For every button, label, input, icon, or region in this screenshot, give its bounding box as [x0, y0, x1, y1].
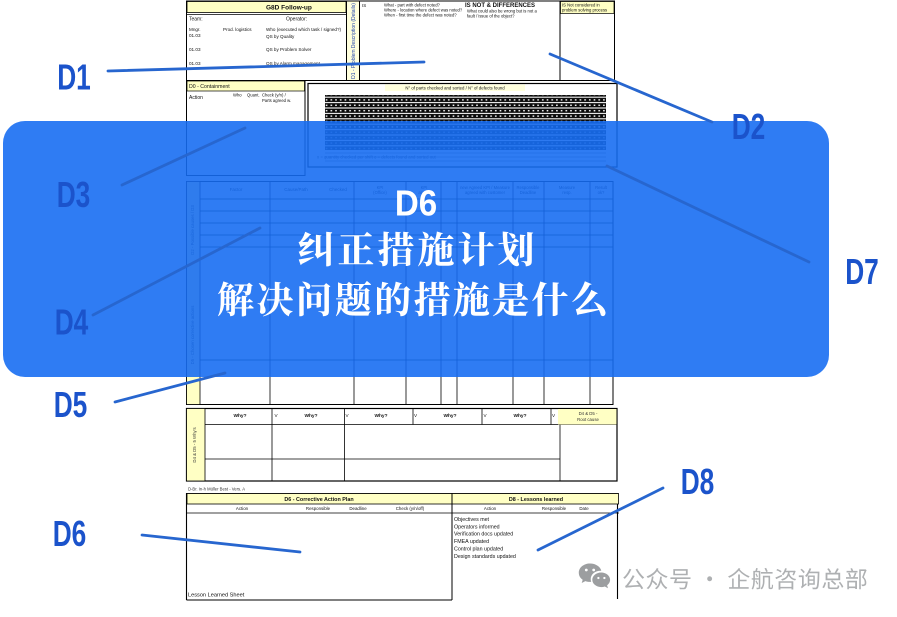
svg-text:D7: D7	[845, 251, 879, 292]
svg-text:Why?: Why?	[374, 413, 387, 419]
svg-text:QS by Problem Solver: QS by Problem Solver	[266, 47, 312, 52]
svg-text:D2: D2	[732, 106, 766, 147]
svg-text:Deadline: Deadline	[349, 506, 367, 511]
svg-text:Design standards updated: Design standards updated	[454, 554, 516, 560]
svg-text:D1 - Problem Description (Deta: D1 - Problem Description (Details)	[351, 3, 357, 79]
svg-text:Team:: Team:	[189, 17, 203, 23]
svg-text:D-Br. In-h Müller Best - Vers.: D-Br. In-h Müller Best - Vers. A	[188, 487, 245, 492]
svg-text:Prod. logistics: Prod. logistics	[223, 27, 252, 32]
svg-text:D6: D6	[395, 184, 437, 224]
svg-text:01.03: 01.03	[189, 33, 201, 38]
svg-text:Mngr.: Mngr.	[189, 27, 201, 32]
svg-text:Action: Action	[189, 95, 203, 101]
svg-text:Responsible: Responsible	[306, 506, 331, 511]
svg-text:QS by Quality: QS by Quality	[266, 34, 295, 39]
svg-text:Action: Action	[484, 506, 497, 511]
svg-text:fault / issue of the object?: fault / issue of the object?	[467, 14, 515, 19]
svg-text:Verification docs updated: Verification docs updated	[454, 532, 513, 538]
svg-text:Who (executed which task / sig: Who (executed which task / signed?)	[266, 27, 342, 32]
svg-text:D8: D8	[681, 461, 715, 502]
svg-text:G8D Follow-up: G8D Follow-up	[266, 5, 312, 12]
svg-text:01.03: 01.03	[189, 61, 201, 66]
svg-text:Check (y/n) /: Check (y/n) /	[262, 93, 287, 98]
svg-text:Check (y/n/off): Check (y/n/off)	[396, 506, 425, 511]
svg-text:IS: IS	[362, 3, 366, 8]
svg-text:Objectives met: Objectives met	[454, 517, 490, 523]
svg-text:Responsible: Responsible	[542, 506, 567, 511]
svg-text:D8 - Lessons learned: D8 - Lessons learned	[509, 497, 563, 503]
svg-text:D6: D6	[53, 513, 87, 554]
svg-text:01.03: 01.03	[189, 47, 201, 52]
svg-text:Why?: Why?	[233, 413, 246, 419]
svg-text:Control plan updated: Control plan updated	[454, 546, 503, 552]
svg-text:When - first time the defect w: When - first time the defect was noted?	[384, 13, 457, 18]
svg-text:D5: D5	[54, 384, 88, 425]
svg-text:Quant.: Quant.	[247, 93, 260, 98]
svg-text:N° of parts checked and sorted: N° of parts checked and sorted / N° of d…	[405, 86, 505, 91]
svg-text:Why?: Why?	[304, 413, 317, 419]
svg-text:Action: Action	[236, 506, 249, 511]
svg-text:Why?: Why?	[443, 413, 456, 419]
svg-text:Operators informed: Operators informed	[454, 524, 500, 530]
svg-text:D0 - Containment: D0 - Containment	[189, 84, 230, 90]
svg-text:FMEA updated: FMEA updated	[454, 539, 489, 545]
svg-text:Who: Who	[233, 93, 242, 98]
svg-text:D1: D1	[57, 56, 91, 97]
svg-text:D4 & D5 - 5 Why's: D4 & D5 - 5 Why's	[192, 427, 197, 462]
svg-text:D3: D3	[57, 174, 91, 215]
svg-text:Root cause: Root cause	[577, 417, 599, 422]
svg-text:Date: Date	[579, 506, 589, 511]
svg-text:Parts agreed w.: Parts agreed w.	[262, 98, 291, 103]
svg-text:D6 - Corrective Action Plan: D6 - Corrective Action Plan	[284, 497, 353, 503]
svg-text:Lesson Learned Sheet: Lesson Learned Sheet	[188, 593, 245, 599]
svg-text:D4 & D5 -: D4 & D5 -	[579, 411, 598, 416]
svg-text:D4: D4	[55, 301, 89, 342]
svg-text:Why?: Why?	[513, 413, 526, 419]
svg-text:Operator:: Operator:	[286, 17, 307, 23]
svg-text:problem solving process: problem solving process	[562, 8, 607, 13]
